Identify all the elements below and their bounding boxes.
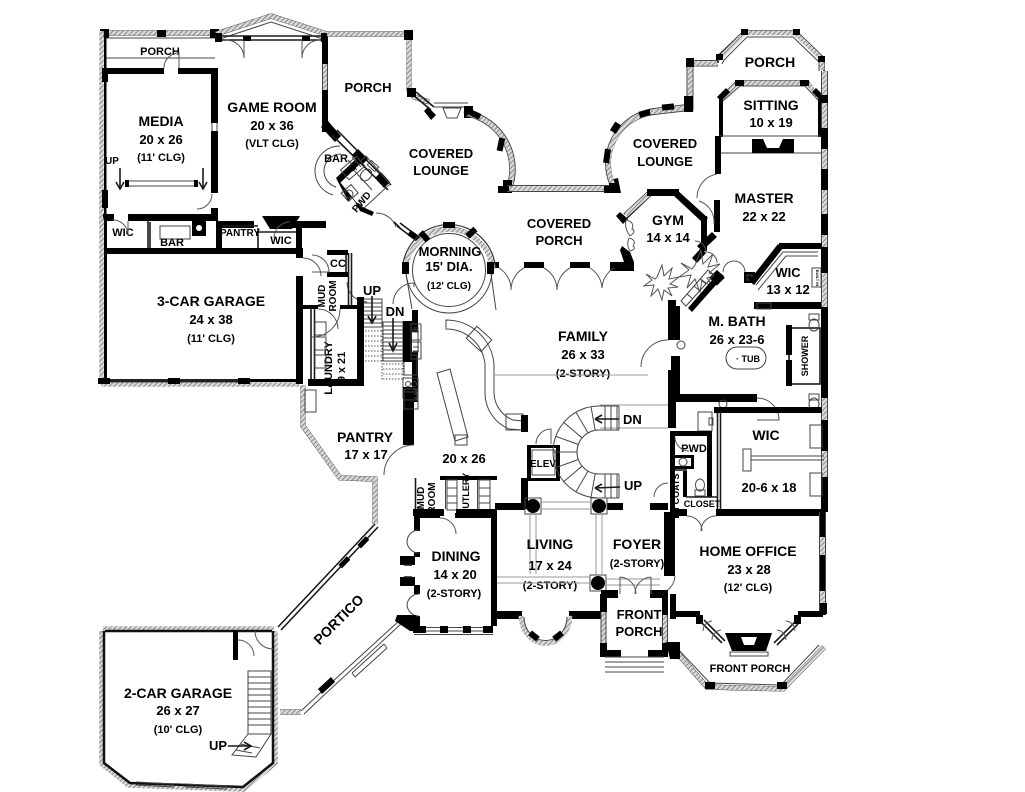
svg-text:20 x 36: 20 x 36 (250, 118, 293, 133)
svg-text:17 x 24: 17 x 24 (528, 558, 572, 573)
svg-text:3-CAR GARAGE: 3-CAR GARAGE (157, 293, 265, 309)
svg-text:HOME OFFICE: HOME OFFICE (699, 543, 796, 559)
svg-text:17 x 17: 17 x 17 (344, 447, 387, 462)
svg-text:FRONT: FRONT (617, 607, 662, 622)
svg-text:BAR: BAR (324, 153, 348, 165)
svg-text:23 x 28: 23 x 28 (727, 562, 770, 577)
svg-text:COATS: COATS (671, 474, 681, 505)
svg-text:UP: UP (624, 478, 642, 493)
svg-text:MUD: MUD (317, 285, 328, 308)
svg-text:LIVING: LIVING (527, 536, 574, 552)
svg-text:13 x 12: 13 x 12 (766, 282, 809, 297)
svg-text:UP: UP (105, 156, 119, 167)
svg-text:24 x 38: 24 x 38 (189, 312, 232, 327)
svg-text:DN: DN (386, 304, 405, 319)
svg-text:PORCH: PORCH (140, 46, 180, 58)
svg-text:20 x 26: 20 x 26 (442, 451, 485, 466)
svg-text:BAR: BAR (160, 237, 184, 249)
svg-text:SHOWER: SHOWER (800, 335, 810, 376)
svg-text:PORCH: PORCH (616, 624, 663, 639)
svg-text:15' DIA.: 15' DIA. (425, 259, 472, 274)
svg-text:LOUNGE: LOUNGE (637, 154, 693, 169)
svg-text:COVERED: COVERED (409, 146, 473, 161)
svg-text:FRONT PORCH: FRONT PORCH (710, 663, 791, 675)
svg-text:MORNING: MORNING (419, 244, 482, 259)
svg-text:9 x 21: 9 x 21 (336, 352, 348, 383)
svg-text:SITTING: SITTING (743, 97, 798, 113)
svg-text:ROOM: ROOM (328, 280, 339, 311)
svg-text:(2-STORY): (2-STORY) (427, 588, 482, 600)
svg-text:(2-STORY): (2-STORY) (523, 580, 578, 592)
svg-text:ROOM: ROOM (427, 482, 438, 513)
svg-text:GAME ROOM: GAME ROOM (227, 99, 316, 115)
svg-text:PORCH: PORCH (536, 233, 583, 248)
svg-text:DN: DN (623, 412, 642, 427)
svg-text:10 x 19: 10 x 19 (749, 115, 792, 130)
svg-text:UP: UP (363, 283, 381, 298)
svg-text:14 x 14: 14 x 14 (646, 230, 690, 245)
svg-text:(10' CLG): (10' CLG) (154, 724, 203, 736)
svg-text:BUTLERY: BUTLERY (461, 473, 471, 515)
svg-text:(VLT CLG): (VLT CLG) (245, 138, 299, 150)
svg-text:LOUNGE: LOUNGE (413, 163, 469, 178)
svg-text:2-CAR GARAGE: 2-CAR GARAGE (124, 685, 232, 701)
svg-text:(11' CLG): (11' CLG) (187, 333, 235, 345)
svg-text:CC: CC (330, 258, 346, 270)
svg-text:COVERED: COVERED (633, 136, 697, 151)
svg-text:COVERED: COVERED (527, 216, 591, 231)
svg-text:(2-STORY): (2-STORY) (610, 558, 665, 570)
svg-text:FOYER: FOYER (613, 536, 661, 552)
svg-text:UP: UP (209, 738, 227, 753)
svg-text:CLOSET: CLOSET (684, 499, 721, 509)
svg-text:(11' CLG): (11' CLG) (137, 152, 185, 164)
svg-text:MUD: MUD (416, 487, 427, 510)
svg-text:26 x 23-6: 26 x 23-6 (710, 332, 765, 347)
svg-text:(12' CLG): (12' CLG) (724, 582, 773, 594)
svg-text:22 x 22: 22 x 22 (742, 209, 785, 224)
svg-text:M. BATH: M. BATH (708, 313, 765, 329)
svg-text:GYM: GYM (652, 212, 684, 228)
svg-text:PANTRY: PANTRY (220, 228, 260, 239)
svg-text:(2-STORY): (2-STORY) (556, 368, 611, 380)
svg-text:WIC: WIC (270, 235, 291, 247)
svg-text:PWD: PWD (681, 443, 707, 455)
svg-text:PORCH: PORCH (345, 80, 392, 95)
svg-text:20-6 x 18: 20-6 x 18 (742, 480, 797, 495)
svg-text:PANTRY: PANTRY (337, 429, 394, 445)
svg-text:26 x 27: 26 x 27 (156, 703, 199, 718)
svg-text:MASTER: MASTER (734, 190, 793, 206)
svg-text:26 x 33: 26 x 33 (561, 347, 604, 362)
svg-text:WIC: WIC (112, 227, 133, 239)
svg-text:14 x 20: 14 x 20 (433, 567, 476, 582)
svg-text:FAMILY: FAMILY (558, 328, 609, 344)
svg-text:ELEV: ELEV (530, 459, 556, 470)
svg-text:WIC: WIC (775, 265, 801, 280)
svg-text:DINING: DINING (432, 548, 481, 564)
svg-text:(12' CLG): (12' CLG) (427, 281, 471, 292)
svg-text:· TUB: · TUB (736, 354, 760, 364)
svg-text:MEDIA: MEDIA (138, 113, 183, 129)
svg-text:PORCH: PORCH (745, 54, 796, 70)
svg-text:20 x 26: 20 x 26 (139, 132, 182, 147)
svg-text:WIC: WIC (752, 427, 779, 443)
svg-text:BUILT IN: BUILT IN (815, 270, 820, 287)
